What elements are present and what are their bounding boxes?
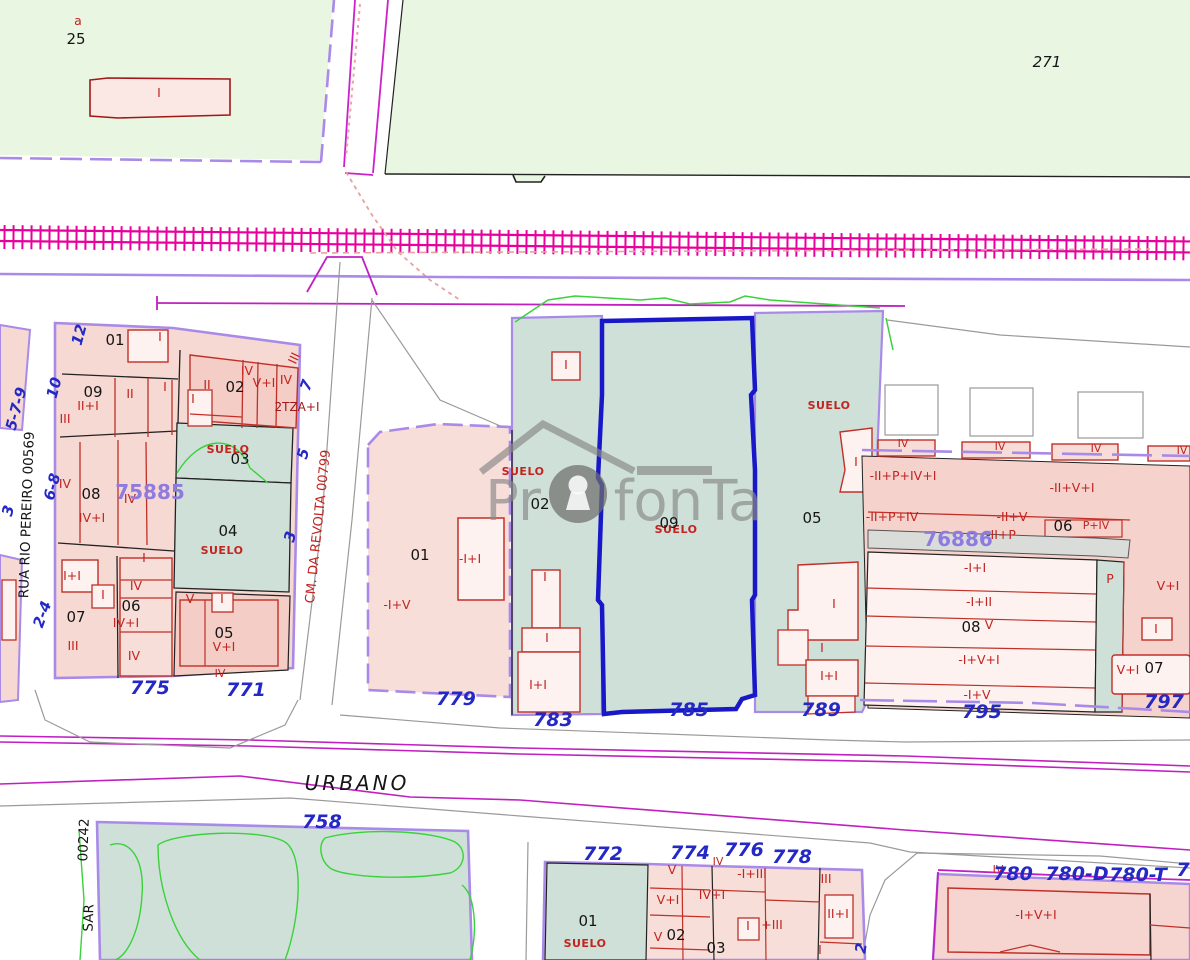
map-label: I [191, 391, 195, 406]
map-label: V [654, 929, 663, 944]
map-label: III [59, 411, 70, 426]
map-label: IV [995, 440, 1006, 453]
map-label: 01 [578, 912, 597, 930]
map-label: 797 [1144, 691, 1184, 713]
map-label: 3 [0, 503, 18, 518]
map-label: 05 [802, 509, 821, 527]
map-label: +III [761, 917, 783, 932]
map-label: -I+V [383, 597, 411, 612]
map-label: 795 [962, 701, 1002, 723]
street-edge-gray [372, 300, 505, 428]
map-label: 25 [66, 30, 85, 48]
map-label: 07 [1144, 659, 1163, 677]
parcel-271-area[interactable] [385, 0, 1190, 182]
map-label: 779 [436, 688, 476, 710]
map-label: IV+I [699, 887, 725, 902]
map-label: V+I [657, 892, 680, 907]
road-magenta-line [157, 303, 905, 306]
map-label: 02 [666, 926, 685, 944]
map-label: -I+I [964, 560, 986, 575]
road-magenta-line [0, 742, 1190, 772]
map-label: IV+I [113, 615, 139, 630]
map-label: URBANO [305, 771, 410, 795]
map-label: II+I [827, 906, 849, 921]
map-label: -I+V+I [1015, 907, 1056, 922]
map-label: -I+I [459, 551, 481, 566]
map-label: -I+II [966, 594, 992, 609]
sidewalk-gray [526, 842, 528, 960]
map-label: 780-T [1109, 864, 1169, 886]
map-label: I+I [63, 568, 81, 583]
parcel-758-suelo[interactable] [97, 822, 472, 960]
cadastral-map-viewport: Pr fonTa a25I27101I02IIIVV+IIVIII2TZA+I0… [0, 0, 1190, 960]
map-label: 02 [530, 495, 549, 513]
map-label: IV [713, 855, 724, 868]
map-label: 783 [533, 709, 573, 731]
map-label: -II+V+I [1049, 480, 1094, 495]
map-label: I [543, 569, 547, 584]
map-label: a [74, 13, 82, 28]
map-label: -I+V+I [958, 652, 999, 667]
yard-outline-gray [1078, 392, 1143, 438]
map-label: IV [1177, 444, 1188, 457]
map-label: 776 [724, 839, 764, 861]
map-label: 01 [410, 546, 429, 564]
map-label: I [545, 630, 549, 645]
map-label: 75885 [115, 480, 185, 504]
map-label: I [854, 454, 858, 469]
map-label: V+I [213, 639, 236, 654]
map-label: II+I [77, 398, 99, 413]
map-label: SAR [81, 904, 98, 932]
map-label: I [832, 596, 836, 611]
map-label: 772 [583, 843, 623, 865]
map-label: I [157, 85, 161, 100]
building-footprint[interactable] [778, 630, 808, 665]
map-label: 03 [706, 939, 725, 957]
map-label: IV [128, 648, 141, 663]
map-label: 771 [226, 679, 266, 701]
building-footprint[interactable] [2, 580, 16, 640]
map-label: I+I [820, 668, 838, 683]
map-label: 08 [961, 618, 980, 636]
yard-gray-line [887, 320, 1190, 347]
street-edge-gray [332, 298, 372, 705]
map-label: V [186, 591, 195, 606]
map-label: 02 [225, 378, 244, 396]
cadastral-map: Pr fonTa a25I27101I02IIIVV+IIVIII2TZA+I0… [0, 0, 1190, 960]
map-label: CM. DA REVOLTA 00799 [303, 449, 334, 604]
map-label: I [220, 591, 224, 606]
map-label: 00242 [75, 818, 92, 861]
map-label: 785 [669, 699, 709, 721]
road-magenta-line [0, 736, 1190, 766]
map-label: 780-D [1045, 863, 1108, 885]
map-label: IV [898, 437, 909, 450]
building-footprint[interactable] [518, 652, 580, 712]
map-label: 780 [993, 863, 1033, 885]
map-label: 07 [66, 608, 85, 626]
building-footprint[interactable] [522, 628, 580, 652]
map-label: 2TZA+I [275, 400, 320, 414]
contour-green [886, 318, 893, 350]
map-label: I [101, 587, 105, 602]
map-label: I [564, 357, 568, 372]
map-label: V+I [1117, 662, 1140, 677]
map-label: II [126, 386, 133, 401]
map-label: RUA RIO PEREIRO 00569 [16, 431, 38, 598]
map-label: 7 [1176, 859, 1190, 881]
map-label: 2-4 [29, 598, 55, 630]
map-label: IV+I [79, 510, 105, 525]
map-label: III [67, 638, 78, 653]
map-label: I+I [529, 677, 547, 692]
map-label: IV [215, 667, 226, 680]
map-label: 09 [659, 514, 678, 532]
map-label: 775 [130, 677, 170, 699]
map-label: 06 [121, 597, 140, 615]
map-label: V [668, 862, 677, 877]
map-label: I [746, 918, 750, 933]
map-label: 08 [81, 485, 100, 503]
map-label: SUELO [201, 544, 244, 557]
map-label: 76886 [923, 527, 993, 551]
map-label: P [1106, 571, 1114, 586]
map-label: -II+V [997, 509, 1028, 524]
corridor-magenta-cap [345, 173, 373, 175]
road-purple-line [0, 274, 1190, 280]
map-label: I [1154, 621, 1158, 636]
map-label: V [985, 617, 994, 632]
map-label: 778 [772, 846, 812, 868]
map-label: -I+III [737, 866, 767, 881]
watermark-lock-keyhole [569, 476, 588, 495]
map-label: IV [130, 578, 143, 593]
building-footprint[interactable] [128, 330, 168, 362]
map-label: SUELO [564, 937, 607, 950]
map-label: -II+P+IV+I [870, 468, 937, 483]
map-label: II [203, 377, 210, 392]
railway [0, 225, 1190, 260]
map-label: SUELO [502, 465, 545, 478]
map-label: 04 [218, 522, 237, 540]
map-label: I [142, 550, 146, 565]
map-label: 789 [801, 699, 841, 721]
map-label: -I+V [963, 687, 991, 702]
corridor-magenta [373, 0, 388, 173]
map-label: SUELO [808, 399, 851, 412]
map-label: V+I [1157, 578, 1180, 593]
map-label: 03 [230, 450, 249, 468]
map-label: IV [280, 372, 293, 387]
map-label: I [158, 329, 162, 344]
map-label: IV [1091, 442, 1102, 455]
map-label: 758 [302, 811, 342, 833]
map-label: V+I [253, 375, 276, 390]
map-label: 2 [851, 941, 871, 954]
building-footprint[interactable] [788, 562, 858, 640]
yard-outline-gray [970, 388, 1033, 436]
map-label: 06 [1053, 517, 1072, 535]
map-label: I [163, 379, 167, 394]
map-label: I [820, 640, 824, 655]
building-footprint[interactable] [1052, 444, 1118, 460]
map-label: P+IV [1083, 519, 1110, 532]
map-label: 271 [1033, 53, 1062, 71]
map-label: I [818, 942, 822, 957]
map-label: 774 [670, 842, 710, 864]
map-label: 01 [105, 331, 124, 349]
map-label: -II+P+IV [866, 509, 919, 524]
map-label: III [820, 871, 831, 886]
sidewalk-gray [340, 715, 1190, 742]
yard-outline-gray [885, 385, 938, 435]
